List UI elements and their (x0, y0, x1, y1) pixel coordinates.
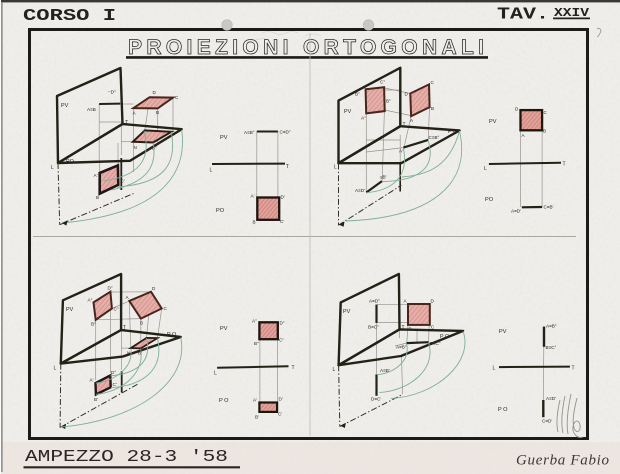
svg-text:CORSO I: CORSO I (23, 6, 116, 25)
svg-text:PV: PV (220, 326, 228, 332)
svg-text:T: T (286, 164, 289, 170)
svg-text:B: B (140, 321, 143, 326)
svg-text:D≡C': D≡C' (371, 397, 381, 402)
svg-text:D°: D° (280, 321, 285, 326)
svg-text:T: T (563, 162, 566, 168)
svg-text:A≡D': A≡D' (546, 396, 556, 401)
svg-text:−D°: −D° (108, 90, 116, 95)
svg-text:B: B (431, 106, 434, 111)
svg-text:P O: P O (219, 398, 229, 404)
svg-text:C≡D': C≡D' (542, 419, 552, 424)
svg-text:L: L (51, 165, 54, 171)
svg-text:B≡C°: B≡C° (546, 345, 557, 350)
svg-text:L: L (484, 166, 487, 172)
svg-text:L: L (214, 371, 217, 377)
svg-text:C°: C° (380, 80, 385, 85)
svg-text:L: L (334, 165, 337, 171)
svg-text:P O: P O (448, 129, 457, 135)
svg-text:L: L (54, 366, 57, 372)
svg-text:PV: PV (66, 307, 74, 313)
svg-text:N: N (127, 351, 130, 356)
svg-text:C'': C'' (279, 338, 284, 343)
svg-text:C≡B°: C≡B° (429, 135, 440, 140)
svg-text:Guerba Fabio: Guerba Fabio (516, 453, 610, 469)
svg-text:T: T (402, 325, 405, 331)
svg-text:T: T (572, 366, 575, 372)
svg-text:T: T (125, 120, 128, 126)
svg-text:B°: B° (355, 92, 360, 97)
svg-text:P O: P O (498, 407, 508, 413)
svg-text:C≡D°: C≡D° (280, 130, 291, 135)
svg-text:PV: PV (220, 135, 228, 141)
svg-text:D≡C°: D≡C° (430, 341, 441, 346)
svg-text:B'': B'' (386, 99, 391, 104)
svg-text:≤B': ≤B' (380, 175, 387, 180)
svg-text:A≡D°: A≡D° (369, 299, 380, 304)
svg-text:B'': B'' (91, 322, 96, 327)
svg-text:A'': A'' (361, 116, 366, 121)
svg-text:D°: D° (111, 370, 116, 375)
svg-text:A°: A° (88, 298, 93, 303)
svg-text:D°: D° (108, 286, 113, 291)
svg-text:A≡D': A≡D' (511, 209, 521, 214)
svg-text:P O: P O (167, 332, 176, 338)
svg-text:C': C' (113, 382, 117, 387)
svg-text:C'': C'' (114, 307, 119, 312)
svg-text:A≡B°: A≡B° (396, 345, 407, 350)
svg-text:PV: PV (61, 103, 69, 109)
svg-text:B: B (96, 195, 99, 200)
svg-text:C': C' (280, 219, 284, 224)
svg-text:PV: PV (499, 329, 507, 335)
svg-text:T: T (403, 122, 406, 128)
svg-text:B: B (409, 327, 412, 332)
svg-text:PV: PV (489, 119, 497, 125)
svg-text:A°: A° (252, 319, 257, 324)
svg-text:TAV.: TAV. (497, 4, 549, 23)
svg-text:B: B (253, 220, 256, 225)
svg-text:PROIEZIONI ORTOGONALI: PROIEZIONI ORTOGONALI (128, 36, 484, 59)
svg-text:D': D' (281, 195, 285, 200)
svg-text:C': C' (278, 412, 282, 417)
svg-text:PO: PO (66, 159, 74, 165)
svg-text:PO: PO (216, 208, 225, 214)
svg-text:A': A' (94, 173, 98, 178)
svg-text:A≡B°: A≡B° (244, 130, 255, 135)
svg-text:AMPEZZO 28-3 '58: AMPEZZO 28-3 '58 (25, 448, 228, 467)
svg-text:B'': B'' (254, 341, 259, 346)
svg-text:B': B' (94, 397, 98, 402)
svg-text:A': A' (253, 398, 257, 403)
svg-text:N: N (134, 145, 137, 150)
svg-text:T: T (292, 365, 295, 371)
svg-text:B: B (543, 129, 546, 134)
svg-text:C≡B': C≡B' (544, 205, 554, 210)
svg-text:B≡C°: B≡C° (368, 325, 379, 330)
svg-text:PV: PV (344, 109, 352, 115)
svg-text:A': A' (90, 378, 94, 383)
svg-text:A≡D': A≡D' (355, 188, 365, 193)
svg-text:L: L (333, 367, 336, 373)
svg-text:A≡B: A≡B (87, 107, 96, 112)
svg-text:A': A' (251, 194, 255, 199)
svg-text:B°: B° (152, 146, 157, 151)
svg-text:D': D' (279, 397, 283, 402)
svg-text:A≡B°: A≡B° (546, 324, 557, 329)
svg-text:B': B' (255, 415, 259, 420)
svg-text:PV: PV (343, 309, 351, 315)
svg-text:P O: P O (440, 334, 449, 340)
svg-text:L: L (210, 168, 213, 174)
svg-text:L: L (493, 366, 496, 372)
svg-text:B: B (156, 110, 159, 115)
svg-text:PO: PO (485, 197, 494, 203)
svg-text:T: T (123, 325, 126, 331)
